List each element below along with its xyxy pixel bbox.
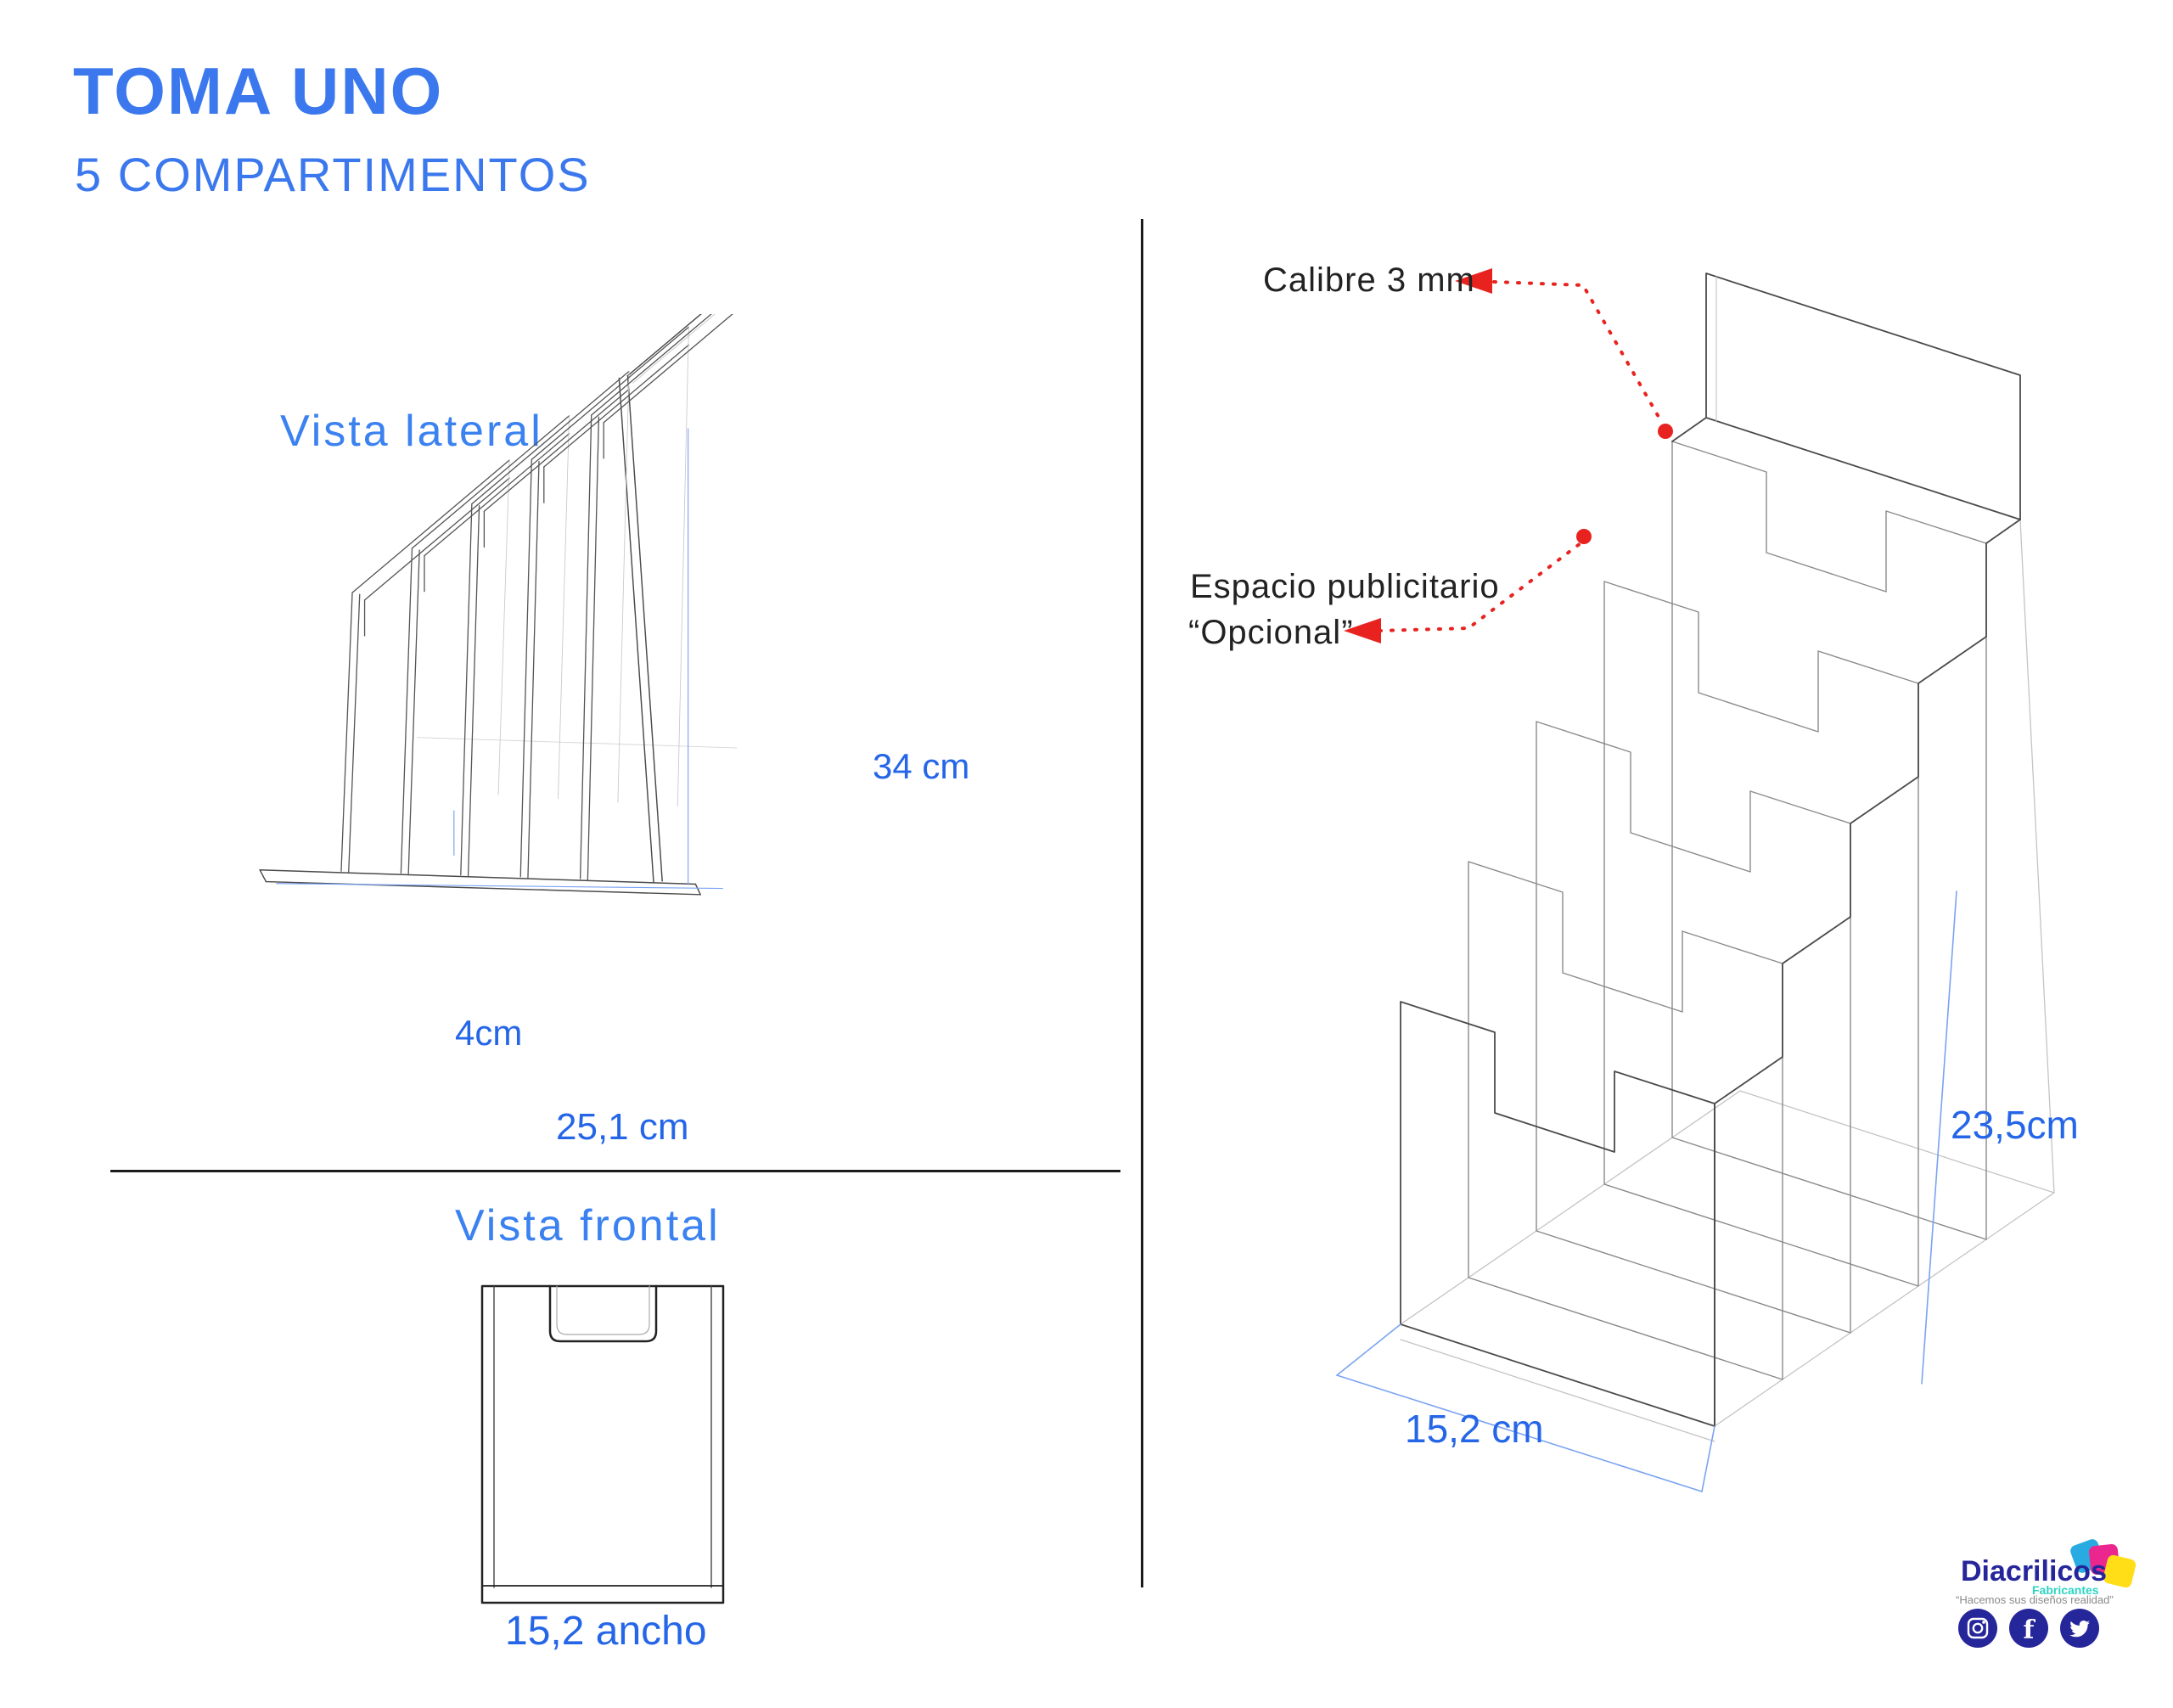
twitter-icon[interactable] [2060,1609,2099,1648]
caliber-point [1658,424,1673,439]
iso-dim-height: 23,5cm [1951,1105,2079,1144]
ad-point [1576,529,1592,544]
logo-square-yellow-icon [2102,1553,2137,1588]
lateral-dim-height: 34 cm [873,749,969,784]
instagram-icon[interactable] [1958,1609,1997,1648]
facebook-letter: f [2024,1618,2035,1643]
horizontal-divider [110,1170,1120,1172]
frontal-drawing [458,1265,747,1621]
dim-line-251cm [277,884,723,889]
brand-logo: Diacrilicos Fabricantes “Hacemos sus dis… [1944,1538,2165,1683]
lateral-drawing [238,314,917,1146]
lateral-dim-pocket: 4cm [455,1015,522,1051]
facebook-icon[interactable]: f [2009,1609,2048,1648]
logo-brand-text: Diacrilicos [1961,1557,2107,1586]
ad-annotation-line2: “Opcional” [1188,611,1354,654]
step-silhouette [1715,520,2020,1426]
iso-dim-width: 15,2 cm [1405,1409,1544,1448]
ad-annotation-line1: Espacio publicitario [1190,565,1500,608]
page-title: TOMA UNO [73,58,443,124]
vertical-divider [1141,219,1143,1587]
caliber-annotation: Calibre 3 mm [1263,259,1475,301]
caliber-leader [1494,282,1662,423]
spec-sheet: TOMA UNO 5 COMPARTIMENTOS Vista lateral [0,0,2173,1708]
header-panel [1706,273,2020,520]
frontal-dim-width: 15,2 ancho [505,1611,707,1652]
logo-tagline: “Hacemos sus diseños realidad” [1956,1594,2114,1605]
page-subtitle: 5 COMPARTIMENTOS [75,151,591,199]
frontal-view-label: Vista frontal [455,1204,721,1248]
lateral-dim-depth: 25,1 cm [556,1109,689,1146]
iso-drawing [1171,221,2156,1545]
thumb-notch [550,1286,656,1341]
